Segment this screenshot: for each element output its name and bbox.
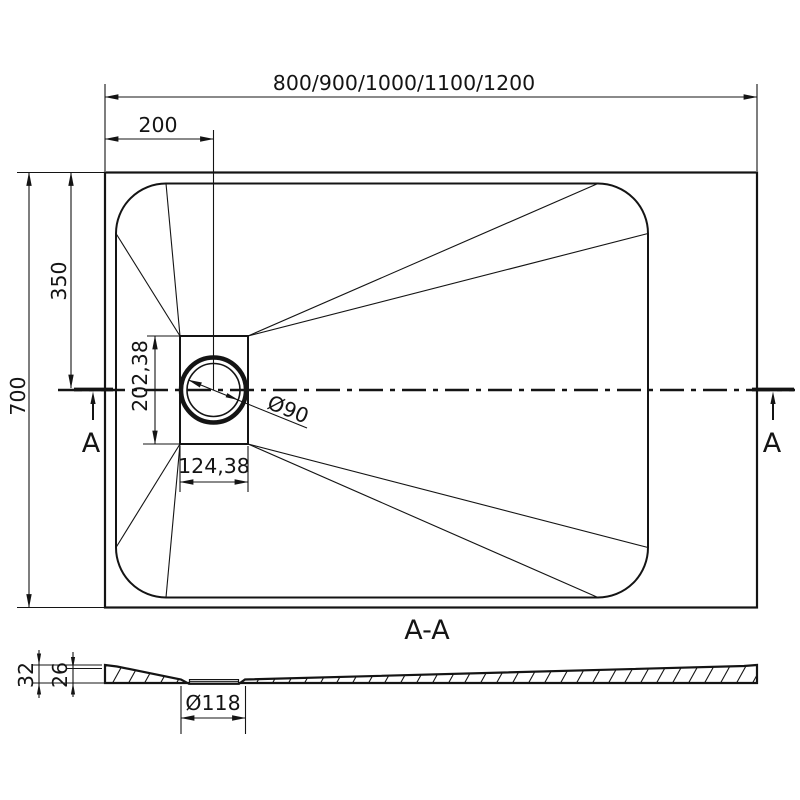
overall-height-dimension: 700: [6, 376, 30, 415]
section-drain-diameter-dimension: Ø118: [185, 691, 240, 715]
basin-depth-dimension: 26: [48, 662, 72, 688]
arrow-up-icon: [770, 392, 775, 405]
slope-line: [116, 234, 180, 337]
section-letter-left: A: [82, 428, 101, 459]
slope-line: [116, 444, 180, 548]
center-offset-dimension: 350: [47, 261, 71, 300]
section-letter-right: A: [763, 428, 782, 459]
diameter-arrowhead-icon: [226, 393, 239, 400]
drain-diameter-dimension: Ø90: [264, 390, 312, 428]
total-height-dimension: 32: [14, 662, 38, 688]
section-drain-cover: [190, 680, 239, 684]
section-arrow-right: [770, 392, 775, 421]
drain-width-dimension: 124,38: [178, 454, 250, 478]
drain-offset-dimension: 200: [138, 113, 177, 137]
plan-view: 800/900/1000/1100/1200 200 700 350 202,3…: [6, 71, 795, 608]
shower-tray-drawing: 800/900/1000/1100/1200 200 700 350 202,3…: [0, 0, 800, 800]
arrow-up-icon: [90, 392, 95, 405]
section-title: A-A: [404, 615, 450, 646]
section-view: A-A 32 26: [14, 615, 757, 734]
slope-line: [166, 184, 180, 337]
overall-width-dimension: 800/900/1000/1100/1200: [273, 71, 535, 95]
technical-drawing-canvas: 800/900/1000/1100/1200 200 700 350 202,3…: [0, 0, 800, 800]
section-arrow-left: [90, 392, 95, 421]
drain-height-dimension: 202,38: [128, 340, 152, 412]
